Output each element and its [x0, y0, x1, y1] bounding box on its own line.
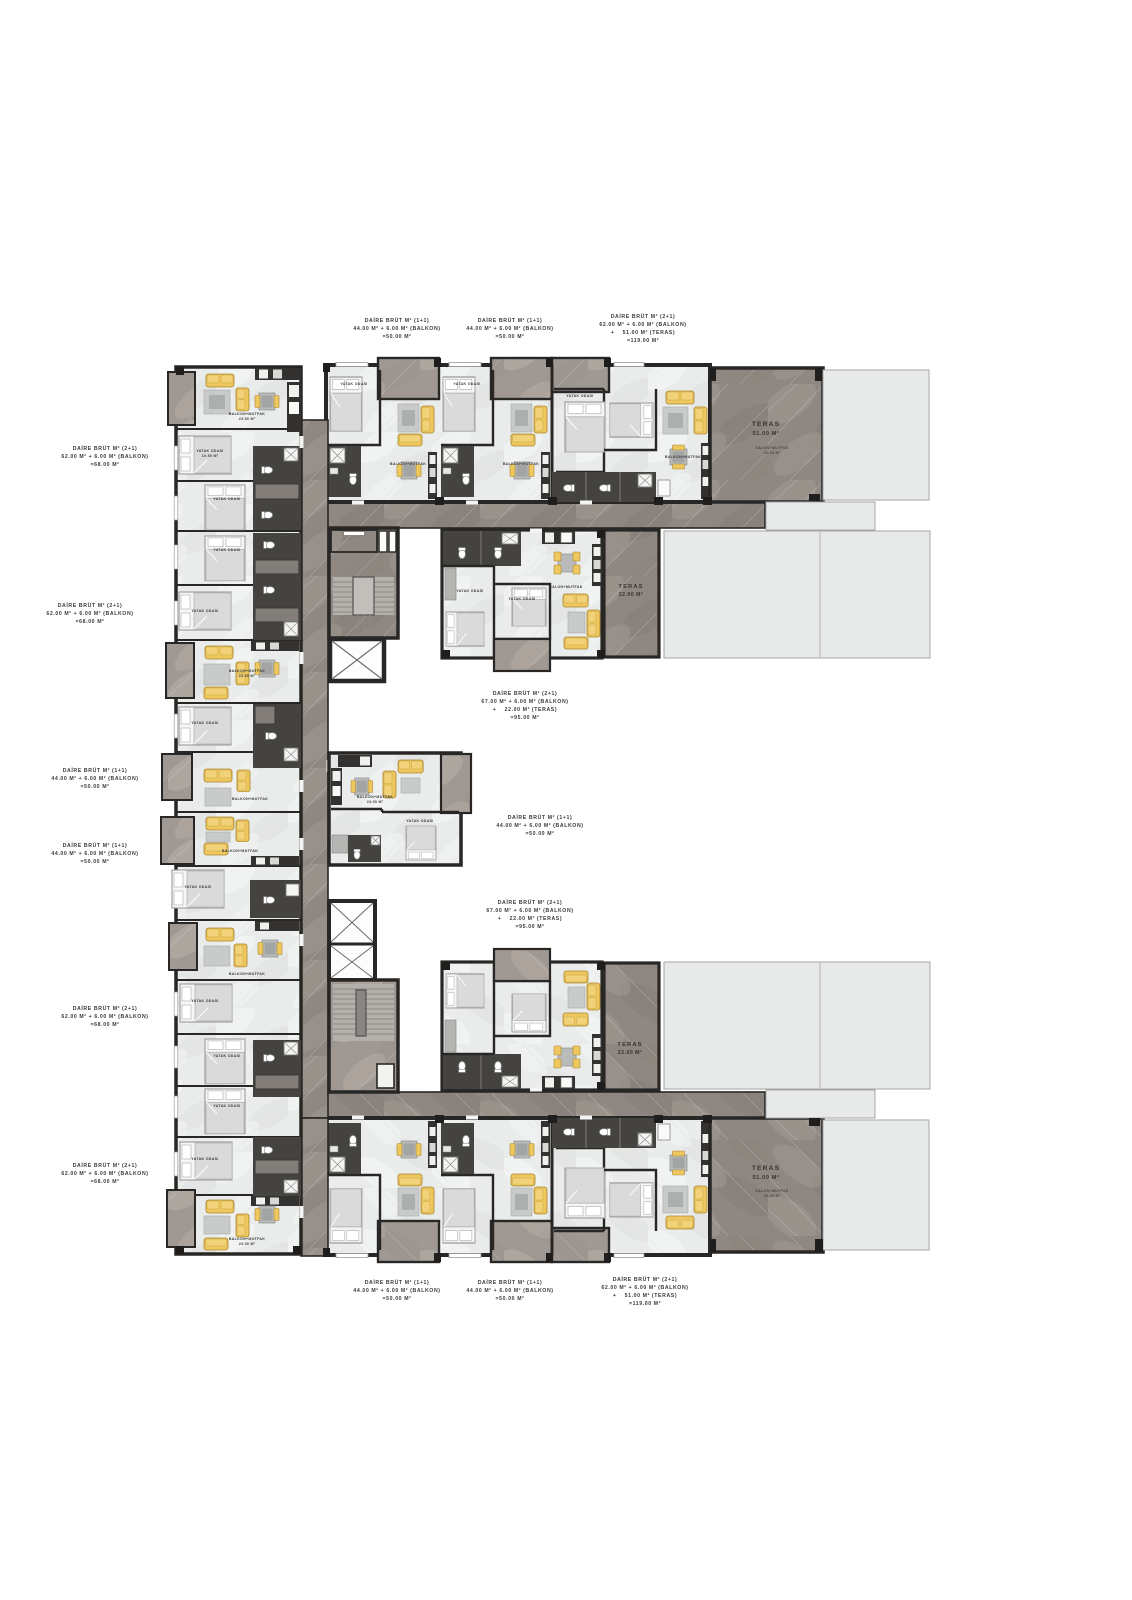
svg-text:DAİRE BRÜT M² (2+1): DAİRE BRÜT M² (2+1) [611, 313, 676, 320]
svg-text:51.00 M²: 51.00 M² [753, 430, 780, 437]
svg-text:TERAS: TERAS [617, 1042, 642, 1048]
svg-text:10.50 M²: 10.50 M² [202, 454, 219, 458]
svg-text:BALKON+MUTFAK: BALKON+MUTFAK [665, 455, 701, 459]
svg-text:YATAK ODASI: YATAK ODASI [196, 449, 223, 453]
svg-text:53.00 M²: 53.00 M² [764, 451, 781, 455]
svg-text:=68.00 M²: =68.00 M² [76, 619, 105, 625]
svg-text:YATAK ODASI: YATAK ODASI [456, 589, 483, 593]
svg-text:SALON+MUTFAK: SALON+MUTFAK [755, 1189, 788, 1193]
svg-text:YATAK ODASI: YATAK ODASI [213, 1104, 240, 1108]
svg-text:62.00 M² + 6.00 M² (BALKON): 62.00 M² + 6.00 M² (BALKON) [61, 454, 148, 460]
svg-text:DAİRE BRÜT M² (1+1): DAİRE BRÜT M² (1+1) [478, 317, 543, 324]
svg-text:+ 51.00 M² (TERAS): + 51.00 M² (TERAS) [613, 1293, 677, 1299]
svg-text:22.00 M²: 22.00 M² [618, 1050, 642, 1056]
svg-text:DAİRE BRÜT M² (2+1): DAİRE BRÜT M² (2+1) [498, 899, 563, 906]
svg-text:YATAK ODASI: YATAK ODASI [508, 597, 535, 601]
svg-text:44.00 M² + 6.00 M² (BALKON): 44.00 M² + 6.00 M² (BALKON) [496, 823, 583, 829]
svg-text:62.00 M² + 6.00 M² (BALKON): 62.00 M² + 6.00 M² (BALKON) [61, 1171, 148, 1177]
svg-text:62.00 M² + 6.00 M² (BALKON): 62.00 M² + 6.00 M² (BALKON) [601, 1285, 688, 1291]
svg-text:BALKON+MUTFAK: BALKON+MUTFAK [229, 412, 265, 416]
svg-text:YATAK ODASI: YATAK ODASI [191, 999, 218, 1003]
svg-text:YATAK ODASI: YATAK ODASI [566, 394, 593, 398]
svg-text:YATAK ODASI: YATAK ODASI [184, 885, 211, 889]
svg-text:BALKON+MUTFAK: BALKON+MUTFAK [503, 462, 539, 466]
svg-text:BALKON+MUTFAK: BALKON+MUTFAK [232, 797, 268, 801]
svg-text:23.50 M²: 23.50 M² [239, 417, 256, 421]
svg-text:BALKON+MUTFAK: BALKON+MUTFAK [229, 1237, 265, 1241]
svg-text:67.00 M² + 6.00 M² (BALKON): 67.00 M² + 6.00 M² (BALKON) [486, 908, 573, 914]
svg-text:44.00 M² + 6.00 M² (BALKON): 44.00 M² + 6.00 M² (BALKON) [51, 776, 138, 782]
svg-text:TERAS: TERAS [752, 421, 781, 428]
svg-text:DAİRE BRÜT M² (2+1): DAİRE BRÜT M² (2+1) [493, 690, 558, 697]
svg-text:=119.00 M²: =119.00 M² [627, 338, 659, 344]
svg-text:=119.00 M²: =119.00 M² [629, 1301, 661, 1307]
svg-text:BALKON+MUTFAK: BALKON+MUTFAK [357, 795, 393, 799]
svg-text:SALON+MUTFAK: SALON+MUTFAK [755, 446, 788, 450]
svg-text:DAİRE BRÜT M² (2+1): DAİRE BRÜT M² (2+1) [73, 1005, 138, 1012]
svg-text:=68.00 M²: =68.00 M² [91, 462, 120, 468]
svg-text:+ 22.00 M² (TERAS): + 22.00 M² (TERAS) [498, 916, 562, 922]
svg-text:51.00 M²: 51.00 M² [753, 1174, 780, 1181]
svg-text:DAİRE BRÜT M² (1+1): DAİRE BRÜT M² (1+1) [365, 1279, 430, 1286]
svg-text:DAİRE BRÜT M² (1+1): DAİRE BRÜT M² (1+1) [478, 1279, 543, 1286]
svg-text:=50.00 M²: =50.00 M² [81, 859, 110, 865]
svg-text:DAİRE BRÜT M² (1+1): DAİRE BRÜT M² (1+1) [508, 814, 573, 821]
svg-text:=68.00 M²: =68.00 M² [91, 1179, 120, 1185]
svg-text:44.00 M² + 6.00 M² (BALKON): 44.00 M² + 6.00 M² (BALKON) [353, 326, 440, 332]
svg-text:DAİRE BRÜT M² (1+1): DAİRE BRÜT M² (1+1) [365, 317, 430, 324]
svg-text:67.00 M² + 6.00 M² (BALKON): 67.00 M² + 6.00 M² (BALKON) [481, 699, 568, 705]
svg-text:=95.00 M²: =95.00 M² [511, 715, 540, 721]
svg-text:YATAK ODASI: YATAK ODASI [191, 609, 218, 613]
svg-text:TERAS: TERAS [618, 584, 643, 590]
svg-text:YATAK ODASI: YATAK ODASI [213, 497, 240, 501]
svg-text:YATAK ODASI: YATAK ODASI [213, 548, 240, 552]
svg-text:=50.00 M²: =50.00 M² [496, 1296, 525, 1302]
svg-text:=50.00 M²: =50.00 M² [526, 831, 555, 837]
svg-text:=50.00 M²: =50.00 M² [496, 334, 525, 340]
svg-text:YATAK ODASI: YATAK ODASI [340, 382, 367, 386]
svg-text:SALON+MUTFAK: SALON+MUTFAK [549, 585, 582, 589]
svg-text:BALKON+MUTFAK: BALKON+MUTFAK [222, 849, 258, 853]
svg-text:62.00 M² + 6.00 M² (BALKON): 62.00 M² + 6.00 M² (BALKON) [46, 611, 133, 617]
svg-text:=50.00 M²: =50.00 M² [383, 1296, 412, 1302]
svg-text:BALKON+MUTFAK: BALKON+MUTFAK [229, 669, 265, 673]
svg-text:DAİRE BRÜT M² (2+1): DAİRE BRÜT M² (2+1) [73, 445, 138, 452]
svg-text:=95.00 M²: =95.00 M² [516, 924, 545, 930]
svg-text:DAİRE BRÜT M² (2+1): DAİRE BRÜT M² (2+1) [73, 1162, 138, 1169]
svg-text:YATAK ODASI: YATAK ODASI [406, 819, 433, 823]
svg-text:62.00 M² + 6.00 M² (BALKON): 62.00 M² + 6.00 M² (BALKON) [599, 322, 686, 328]
svg-text:YATAK ODASI: YATAK ODASI [453, 382, 480, 386]
svg-text:YATAK ODASI: YATAK ODASI [191, 721, 218, 725]
svg-text:DAİRE BRÜT M² (1+1): DAİRE BRÜT M² (1+1) [63, 767, 128, 774]
svg-text:+ 22.00 M² (TERAS): + 22.00 M² (TERAS) [493, 707, 557, 713]
svg-text:BALKON+MUTFAK: BALKON+MUTFAK [229, 972, 265, 976]
svg-text:44.00 M² + 6.00 M² (BALKON): 44.00 M² + 6.00 M² (BALKON) [353, 1288, 440, 1294]
svg-text:44.00 M² + 6.00 M² (BALKON): 44.00 M² + 6.00 M² (BALKON) [466, 326, 553, 332]
svg-text:+ 51.00 M² (TERAS): + 51.00 M² (TERAS) [611, 330, 675, 336]
svg-text:44.00 M² + 6.00 M² (BALKON): 44.00 M² + 6.00 M² (BALKON) [466, 1288, 553, 1294]
svg-text:23.50 M²: 23.50 M² [367, 800, 384, 804]
svg-text:23.50 M²: 23.50 M² [239, 674, 256, 678]
svg-text:22.00 M²: 22.00 M² [619, 592, 643, 598]
svg-text:44.00 M² + 6.00 M² (BALKON): 44.00 M² + 6.00 M² (BALKON) [51, 851, 138, 857]
svg-text:DAİRE BRÜT M² (1+1): DAİRE BRÜT M² (1+1) [63, 842, 128, 849]
svg-text:YATAK ODASI: YATAK ODASI [213, 1054, 240, 1058]
svg-text:TERAS: TERAS [752, 1165, 781, 1172]
svg-text:BALKON+MUTFAK: BALKON+MUTFAK [390, 462, 426, 466]
svg-text:=68.00 M²: =68.00 M² [91, 1022, 120, 1028]
svg-text:DAİRE BRÜT M² (2+1): DAİRE BRÜT M² (2+1) [58, 602, 123, 609]
svg-text:23.50 M²: 23.50 M² [239, 1242, 256, 1246]
svg-text:53.00 M²: 53.00 M² [764, 1194, 781, 1198]
svg-text:=50.00 M²: =50.00 M² [383, 334, 412, 340]
svg-text:=50.00 M²: =50.00 M² [81, 784, 110, 790]
svg-text:YATAK ODASI: YATAK ODASI [191, 1157, 218, 1161]
svg-text:DAİRE BRÜT M² (2+1): DAİRE BRÜT M² (2+1) [613, 1276, 678, 1283]
svg-text:62.00 M² + 6.00 M² (BALKON): 62.00 M² + 6.00 M² (BALKON) [61, 1014, 148, 1020]
